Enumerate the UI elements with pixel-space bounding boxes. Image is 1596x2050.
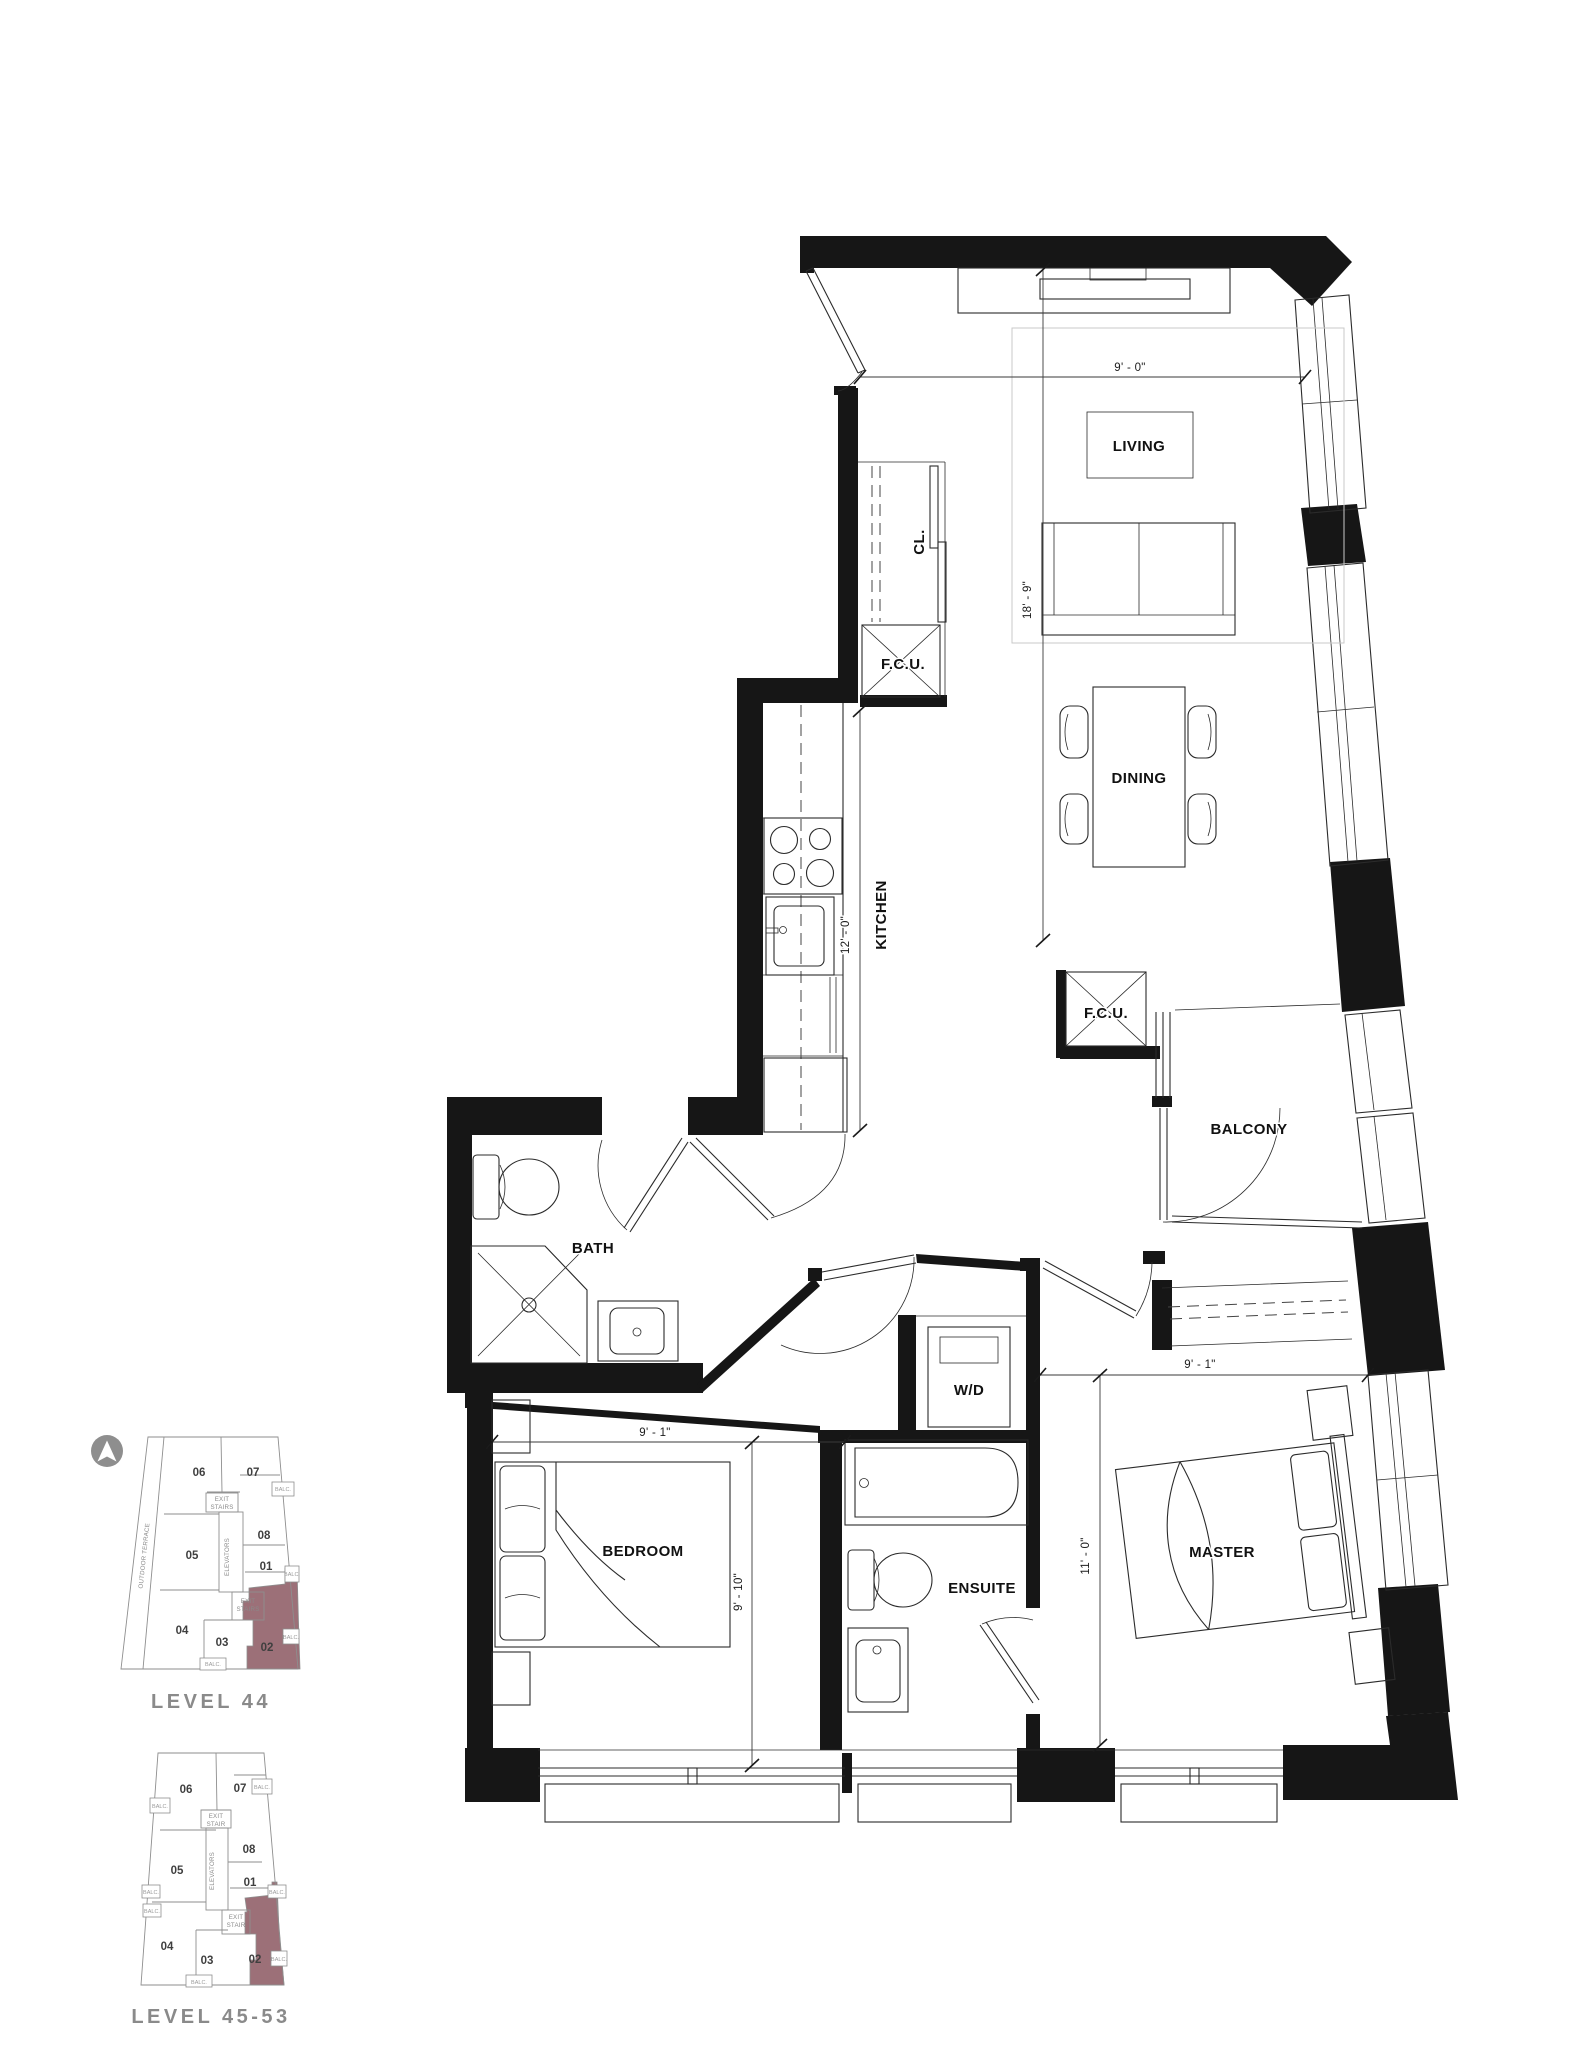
- fcu-1-label: F.C.U.: [881, 656, 925, 673]
- kp4553-balc-2: BALC.: [152, 1804, 168, 1810]
- keyplan-level-45-53: 06 07 08 05 01 04 03 02 EXIT STAIR EXIT …: [141, 1753, 287, 1987]
- kp44-stairs-2: STAIRS: [236, 1606, 259, 1613]
- kitchen-dim: 12' - 0": [840, 916, 852, 954]
- bedroom-width-dim: 9' - 1": [639, 1427, 670, 1439]
- washer-dryer: [916, 1316, 1026, 1427]
- living-width-dim: 9' - 0": [1114, 362, 1145, 374]
- ensuite-door: [980, 1618, 1039, 1703]
- ensuite-label: ENSUITE: [948, 1580, 1016, 1597]
- kp4553-balc-7: BALC.: [191, 1980, 207, 1986]
- kp4553-balc-6: BALC.: [271, 1957, 287, 1963]
- kp4553-balc-1: BALC.: [254, 1785, 270, 1791]
- kitchen-door: [690, 1134, 845, 1220]
- living-label: LIVING: [1113, 438, 1165, 455]
- kp44-outdoor-terrace: OUTDOOR TERRACE: [138, 1523, 152, 1589]
- fcu-2-label: F.C.U.: [1084, 1005, 1128, 1022]
- kp4553-unit-08: 08: [243, 1844, 256, 1856]
- kp44-unit-02: 02: [261, 1642, 274, 1654]
- kp44-unit-01: 01: [260, 1561, 273, 1573]
- bath-fixtures: [471, 1155, 678, 1363]
- kp4553-unit-05: 05: [171, 1865, 184, 1877]
- kp4553-exit-2: EXIT: [229, 1914, 244, 1921]
- master-door: [1043, 1261, 1152, 1318]
- kp44-balc-3: BALC.: [283, 1635, 299, 1641]
- kp44-balc-2: BALC.: [284, 1572, 300, 1578]
- kp44-elevators: ELEVATORS: [224, 1538, 231, 1576]
- kp4553-stair: STAIR: [207, 1821, 226, 1828]
- master-closet: [1162, 1281, 1352, 1346]
- kp44-balc-1: BALC.: [275, 1487, 291, 1493]
- living-depth-dim: 18' - 9": [1022, 581, 1034, 619]
- window-bays-south: [538, 1750, 1283, 1822]
- kp44-balc-4: BALC.: [205, 1662, 221, 1668]
- kp4553-exit: EXIT: [209, 1813, 224, 1820]
- master-label: MASTER: [1189, 1544, 1255, 1561]
- bedroom-depth-dim: 9' - 10": [733, 1573, 745, 1611]
- floor-plan-page: LIVING DINING KITCHEN CL. F.C.U. F.C.U. …: [0, 0, 1596, 2050]
- balcony-glazing-and-door: [1156, 1004, 1362, 1228]
- keyplan-level-44: 06 07 08 05 01 04 03 02 EXIT STAIRS EXIT…: [91, 1435, 300, 1670]
- ensuite-fixtures: [845, 1440, 1028, 1712]
- bath-label: BATH: [572, 1240, 614, 1257]
- kitchen-label: KITCHEN: [873, 880, 890, 949]
- kp44-unit-07: 07: [247, 1467, 260, 1479]
- dining-label: DINING: [1112, 770, 1167, 787]
- kp4553-balc-4: BALC.: [144, 1909, 160, 1915]
- living-furniture: [958, 268, 1344, 643]
- kp4553-balc-3: BALC.: [143, 1890, 159, 1896]
- kp44-exit-2: EXIT: [241, 1598, 256, 1605]
- walls: [447, 236, 1458, 1802]
- balcony-label: BALCONY: [1211, 1121, 1288, 1138]
- floor-plan-drawing: LIVING DINING KITCHEN CL. F.C.U. F.C.U. …: [0, 0, 1596, 2050]
- master-furniture: [1115, 1435, 1367, 1646]
- kp44-stairs: STAIRS: [210, 1504, 233, 1511]
- bedroom-label: BEDROOM: [602, 1543, 683, 1560]
- kp4553-unit-07: 07: [234, 1783, 247, 1795]
- closet-label: CL.: [911, 529, 928, 554]
- entry-door: [806, 268, 865, 391]
- kp44-unit-04: 04: [176, 1625, 189, 1637]
- kp44-unit-05: 05: [186, 1550, 199, 1562]
- kp4553-unit-02: 02: [249, 1954, 262, 1966]
- kp44-unit-06: 06: [193, 1467, 206, 1479]
- kp4553-unit-01: 01: [244, 1877, 257, 1889]
- kp44-unit-08: 08: [258, 1530, 271, 1542]
- level-45-53-title: LEVEL 45-53: [131, 2006, 290, 2028]
- kp44-unit-03: 03: [216, 1637, 229, 1649]
- master-width-dim: 9' - 1": [1184, 1359, 1215, 1371]
- kp44-exit: EXIT: [215, 1496, 230, 1503]
- kp4553-stair-2: STAIR: [227, 1922, 246, 1929]
- kp4553-unit-03: 03: [201, 1955, 214, 1967]
- bath-door: [598, 1138, 688, 1232]
- kp4553-elevators: ELEVATORS: [209, 1852, 216, 1890]
- kitchen-casework: [763, 703, 847, 1132]
- kp4553-balc-5: BALC.: [269, 1890, 285, 1896]
- master-depth-dim: 11' - 0": [1080, 1537, 1092, 1574]
- bedroom-door: [781, 1255, 916, 1353]
- kp4553-unit-06: 06: [180, 1784, 193, 1796]
- level-44-title: LEVEL 44: [151, 1691, 271, 1713]
- kp4553-unit-04: 04: [161, 1941, 174, 1953]
- washer-dryer-label: W/D: [954, 1382, 984, 1399]
